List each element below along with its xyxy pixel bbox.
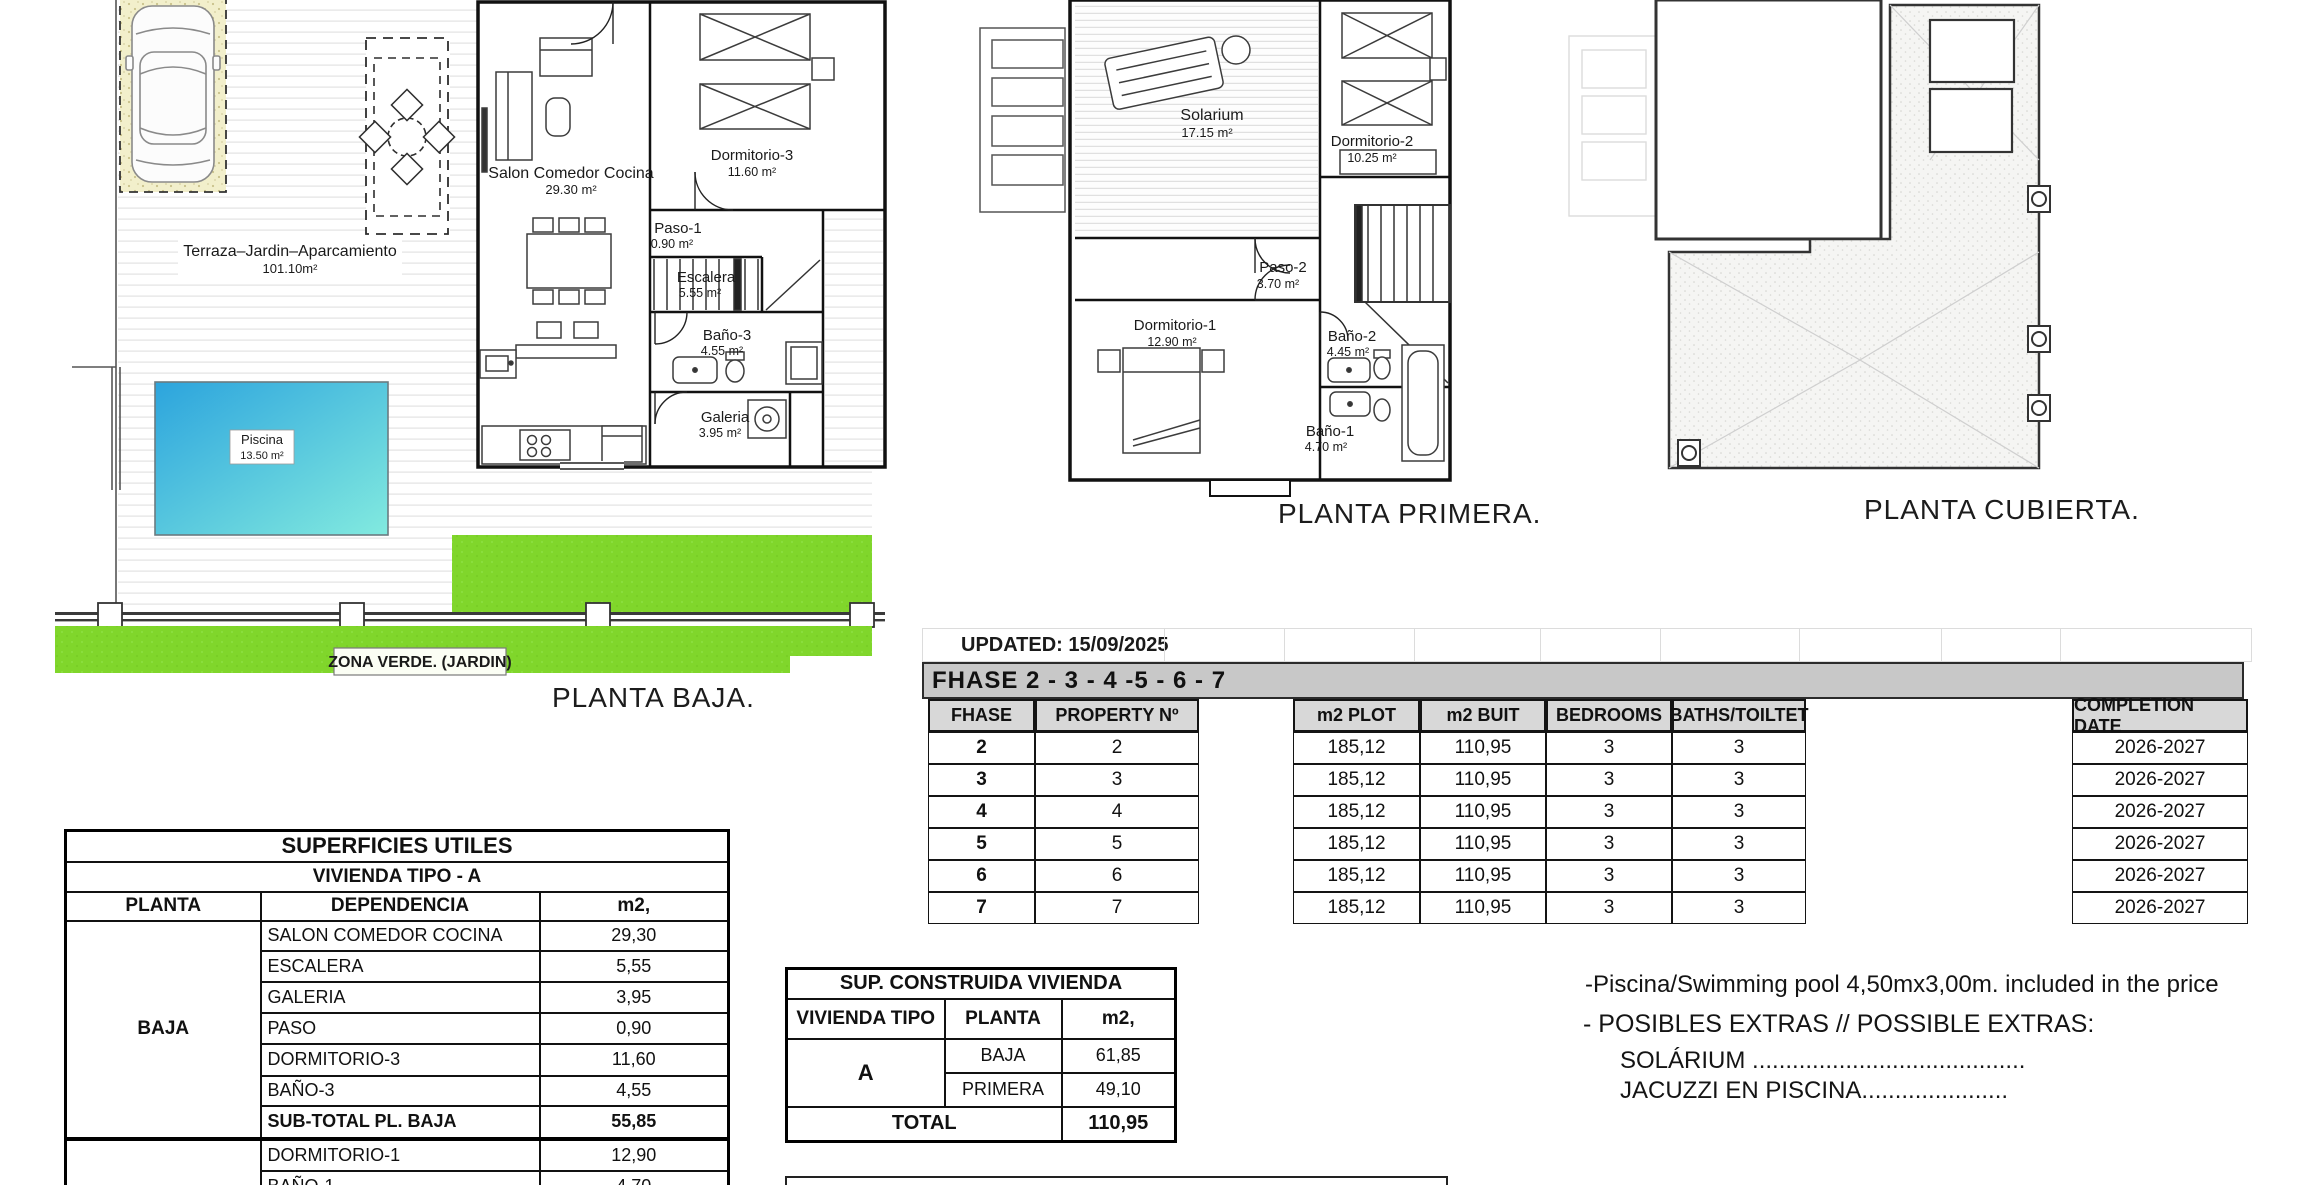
note-solarium: SOLÁRIUM ...............................… <box>1620 1047 2025 1075</box>
subtotal-label: SUB-TOTAL PL. BAJA <box>261 1106 540 1139</box>
title-planta-cubierta: PLANTA CUBIERTA. <box>1864 494 2140 526</box>
cell: 3 <box>1546 796 1672 828</box>
paso2-label: Paso-2 <box>1259 259 1307 276</box>
cell: 0,90 <box>540 1013 729 1044</box>
dorm3-label: Dormitorio-3 <box>711 147 794 164</box>
pool: Piscina 13.50 m² <box>155 382 388 535</box>
cell: 110,95 <box>1420 796 1546 828</box>
planta-baja-drawing: Piscina 13.50 m² Terraza–Jardin–Aparcami… <box>0 0 920 740</box>
cell: PRIMERA <box>945 1073 1062 1107</box>
cell: 3 <box>928 764 1035 796</box>
cell: 2026-2027 <box>2072 732 2248 764</box>
col-fhase: FHASE <box>928 699 1035 732</box>
paso1-area: 0.90 m² <box>651 237 693 251</box>
paso1-label: Paso-1 <box>654 220 702 237</box>
solarium-area: 17.15 m² <box>1181 125 1233 140</box>
dorm2-area: 10.25 m² <box>1347 151 1396 165</box>
plan-sheet: Piscina 13.50 m² Terraza–Jardin–Aparcami… <box>0 0 2304 1185</box>
cell: 3 <box>1672 860 1806 892</box>
planta-cubierta-drawing <box>1555 0 2135 545</box>
phase-banner: FHASE 2 - 3 - 4 -5 - 6 - 7 <box>922 662 2244 699</box>
cell: 4,55 <box>540 1076 729 1106</box>
bano2-label: Baño-2 <box>1328 328 1376 345</box>
col-completion: COMPLETION DATE <box>2072 699 2248 732</box>
superficies-title: SUPERFICIES UTILES <box>66 831 729 862</box>
cell: 3,95 <box>540 982 729 1013</box>
cell: 29,30 <box>540 921 729 951</box>
hdr-m2: m2, <box>540 892 729 921</box>
cell: 2026-2027 <box>2072 764 2248 796</box>
cell: 2026-2027 <box>2072 796 2248 828</box>
cell: DORMITORIO-1 <box>261 1139 540 1171</box>
cell: DORMITORIO-3 <box>261 1044 540 1076</box>
construida-table: SUP. CONSTRUIDA VIVIENDA VIVIENDA TIPO P… <box>785 967 1177 1143</box>
hdr-planta: PLANTA <box>945 999 1062 1039</box>
cell: 3 <box>1546 828 1672 860</box>
cell: 110,95 <box>1420 828 1546 860</box>
col-plot: m2 PLOT <box>1293 699 1420 732</box>
cell: 3 <box>1546 860 1672 892</box>
cell: 61,85 <box>1062 1039 1176 1073</box>
dorm3-area: 11.60 m² <box>728 165 776 179</box>
cell: 5 <box>1035 828 1199 860</box>
cell: 110,95 <box>1420 732 1546 764</box>
bano3-label: Baño-3 <box>703 327 751 344</box>
cell: 3 <box>1546 892 1672 924</box>
cell: 3 <box>1035 764 1199 796</box>
dorm1-area: 12.90 m² <box>1147 335 1196 349</box>
pergola-slats <box>980 28 1065 212</box>
diafanas-box: TOTAL SUPERFICIES DIAFANAS <box>785 1176 1448 1185</box>
pool-area: 13.50 m² <box>240 450 284 462</box>
total-label: TOTAL <box>787 1107 1062 1142</box>
galeria-label: Galeria <box>701 409 750 426</box>
cell: 185,12 <box>1293 892 1420 924</box>
cell: 2 <box>1035 732 1199 764</box>
paso2-area: 3.70 m² <box>1257 277 1299 291</box>
dorm2-label: Dormitorio-2 <box>1331 133 1414 150</box>
svg-text:Terraza–Jardin–Aparcamiento: Terraza–Jardin–Aparcamiento <box>183 243 397 260</box>
subtotal-value: 55,85 <box>540 1106 729 1139</box>
cell: 110,95 <box>1420 764 1546 796</box>
cell: GALERIA <box>261 982 540 1013</box>
cell: 3 <box>1672 796 1806 828</box>
escalera-area: 5.55 m² <box>679 286 721 300</box>
cell: 3 <box>1546 732 1672 764</box>
cell: 110,95 <box>1420 860 1546 892</box>
house-baja: Salon Comedor Cocina 29.30 m² Dormitorio… <box>478 2 885 471</box>
col-baths: BATHS/TOILTET <box>1672 699 1806 732</box>
cell: 7 <box>1035 892 1199 924</box>
col-built: m2 BUIT <box>1420 699 1546 732</box>
note-jacuzzi: JACUZZI EN PISCINA...................... <box>1620 1077 2008 1105</box>
cell: 2 <box>928 732 1035 764</box>
superficies-table: SUPERFICIES UTILES VIVIENDA TIPO - A PLA… <box>64 829 730 1185</box>
salon-area: 29.30 m² <box>545 182 597 197</box>
bano1-label: Baño-1 <box>1306 423 1354 440</box>
cell: 7 <box>928 892 1035 924</box>
svg-text:101.10m²: 101.10m² <box>263 261 319 276</box>
terrace-step <box>1210 480 1290 496</box>
cell: 12,90 <box>540 1139 729 1171</box>
cell: 2026-2027 <box>2072 860 2248 892</box>
cell: BAÑO-3 <box>261 1076 540 1106</box>
cell: 185,12 <box>1293 796 1420 828</box>
title-planta-baja: PLANTA BAJA. <box>552 682 755 714</box>
cell: 11,60 <box>540 1044 729 1076</box>
car-park <box>120 0 226 192</box>
zona-verde-label: ZONA VERDE. (JARDIN) <box>328 654 511 671</box>
cell: 2026-2027 <box>2072 828 2248 860</box>
pool-label: Piscina <box>241 432 284 447</box>
note-pool: -Piscina/Swimming pool 4,50mx3,00m. incl… <box>1585 971 2219 999</box>
group-baja: BAJA <box>66 921 261 1139</box>
solarium-label: Solarium <box>1180 107 1243 124</box>
cell: 4 <box>1035 796 1199 828</box>
salon-label: Salon Comedor Cocina <box>488 165 654 182</box>
cell: 185,12 <box>1293 860 1420 892</box>
plot-boundary-left <box>72 0 120 612</box>
total-value: 110,95 <box>1062 1107 1176 1142</box>
cell: PASO <box>261 1013 540 1044</box>
cell: 6 <box>928 860 1035 892</box>
cell: 4 <box>928 796 1035 828</box>
cell: 3 <box>1672 892 1806 924</box>
tipo-a: A <box>787 1039 945 1107</box>
cell: BAJA <box>945 1039 1062 1073</box>
cell: 110,95 <box>1420 892 1546 924</box>
car-icon <box>126 6 220 182</box>
hdr-planta: PLANTA <box>66 892 261 921</box>
cell: 185,12 <box>1293 828 1420 860</box>
cell: 185,12 <box>1293 764 1420 796</box>
roof-terrace-block <box>1656 0 1881 239</box>
cell: SALON COMEDOR COCINA <box>261 921 540 951</box>
cell: BAÑO-1 <box>261 1171 540 1185</box>
lawn-strip: ZONA VERDE. (JARDIN) <box>55 626 872 675</box>
cell: 5 <box>928 828 1035 860</box>
cell: 3 <box>1672 828 1806 860</box>
patio-pergola <box>359 36 454 236</box>
hdr-m2: m2, <box>1062 999 1176 1039</box>
hdr-vivienda-tipo: VIVIENDA TIPO <box>787 999 945 1039</box>
escalera-label: Escalera <box>677 269 736 286</box>
cell: 49,10 <box>1062 1073 1176 1107</box>
cell: 3 <box>1546 764 1672 796</box>
galeria-washer <box>748 400 786 438</box>
terraza-label: Terraza–Jardin–Aparcamiento 101.10m² <box>178 240 402 278</box>
bano2-area: 4.45 m² <box>1327 345 1369 359</box>
galeria-area: 3.95 m² <box>699 426 741 440</box>
construida-title: SUP. CONSTRUIDA VIVIENDA <box>787 969 1176 999</box>
bano3-area: 4.55 m² <box>701 344 743 358</box>
cell: ESCALERA <box>261 951 540 982</box>
cell: 2026-2027 <box>2072 892 2248 924</box>
cell: 4,70 <box>540 1171 729 1185</box>
planta-primera-drawing: Solarium 17.15 m² Dormitorio-2 10.25 m² … <box>930 0 1500 540</box>
updated-label: UPDATED: 15/09/2025 <box>923 634 1169 657</box>
phase-table: FHASE PROPERTY Nº m2 PLOT m2 BUIT BEDROO… <box>928 699 2248 924</box>
col-property: PROPERTY Nº <box>1035 699 1199 732</box>
cell: 3 <box>1672 764 1806 796</box>
hdr-dependencia: DEPENDENCIA <box>261 892 540 921</box>
updated-row: UPDATED: 15/09/2025 <box>922 628 2252 662</box>
title-planta-primera: PLANTA PRIMERA. <box>1278 498 1541 530</box>
note-extras: - POSIBLES EXTRAS // POSSIBLE EXTRAS: <box>1583 1010 2094 1039</box>
col-bedrooms: BEDROOMS <box>1546 699 1672 732</box>
lawn-upper <box>452 535 872 612</box>
ghost-garden <box>1569 36 1657 216</box>
cell: 3 <box>1672 732 1806 764</box>
cell: 185,12 <box>1293 732 1420 764</box>
cell: 6 <box>1035 860 1199 892</box>
bano1-area: 4.70 m² <box>1305 440 1347 454</box>
dorm1-label: Dormitorio-1 <box>1134 317 1217 334</box>
cell: 5,55 <box>540 951 729 982</box>
superficies-subtitle: VIVIENDA TIPO - A <box>66 862 729 892</box>
